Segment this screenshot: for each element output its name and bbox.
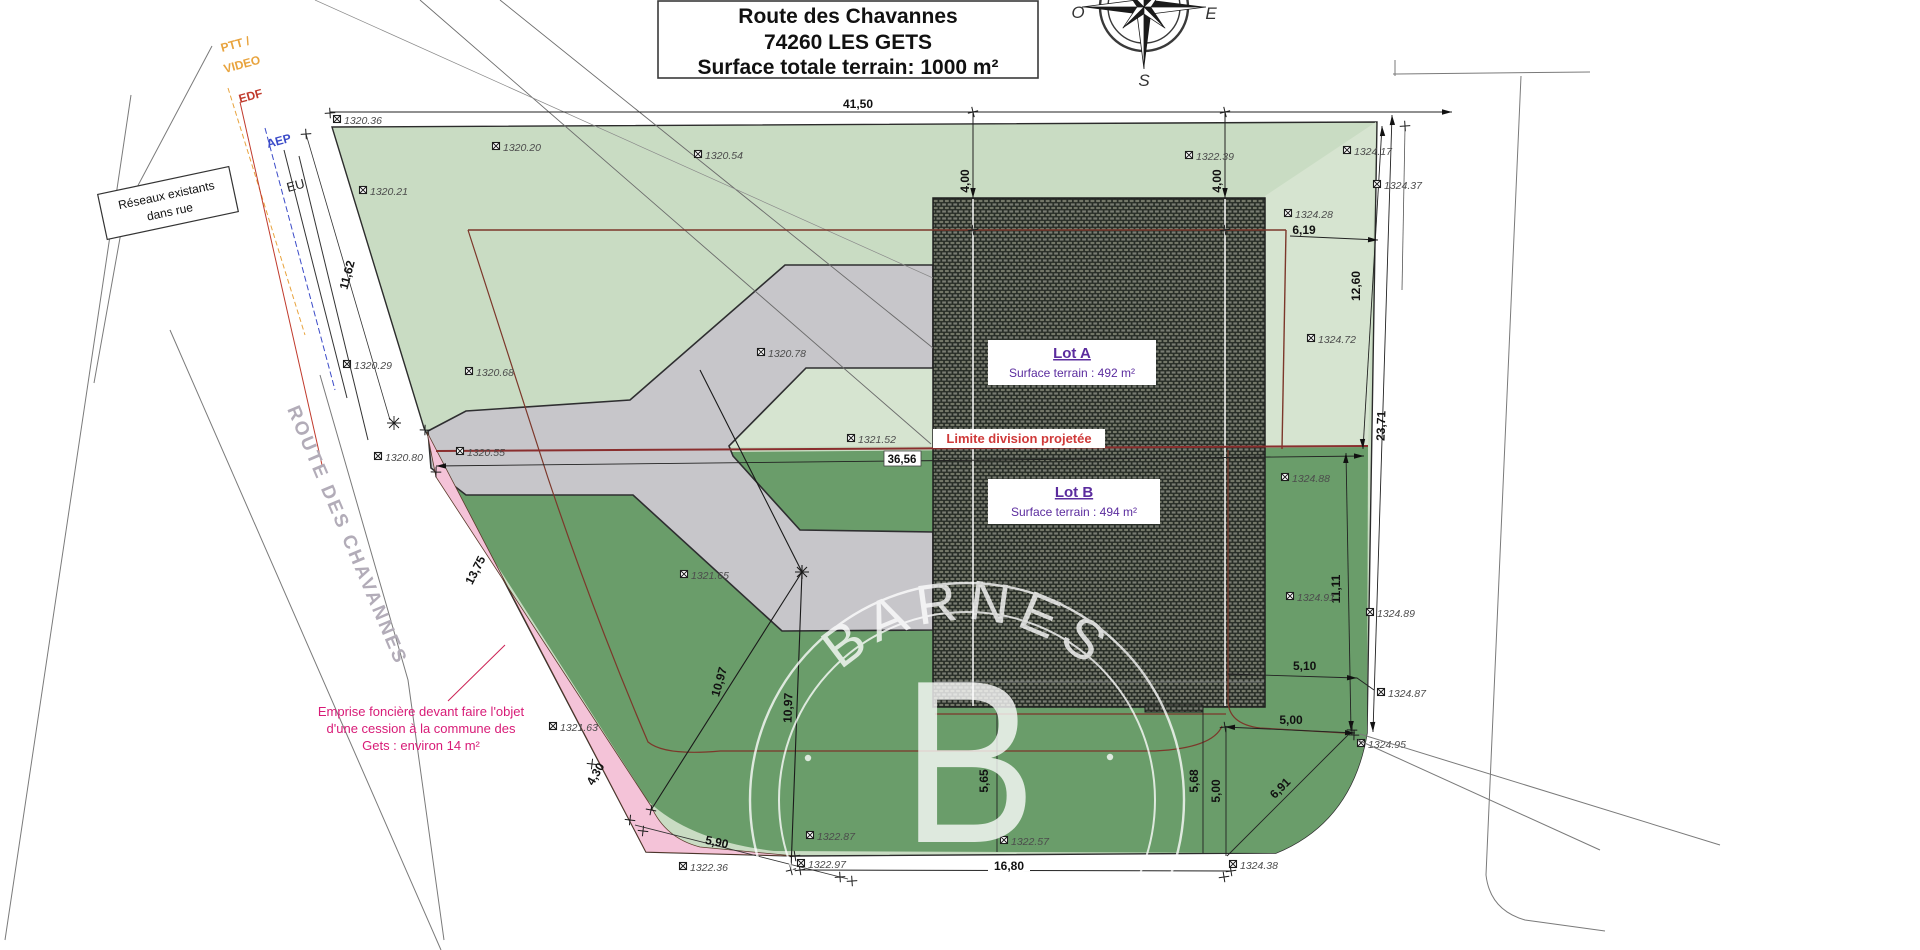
svg-text:1322.87: 1322.87 — [817, 831, 856, 843]
svg-text:23,71: 23,71 — [1373, 410, 1388, 441]
svg-text:Emprise foncière devant faire: Emprise foncière devant faire l'objet — [318, 704, 525, 719]
svg-text:1324.72: 1324.72 — [1318, 334, 1356, 346]
svg-text:1324.89: 1324.89 — [1377, 608, 1415, 620]
svg-text:1320.80: 1320.80 — [385, 452, 423, 464]
svg-text:1321.52: 1321.52 — [858, 434, 896, 446]
svg-text:4,00: 4,00 — [958, 169, 972, 193]
svg-text:1320.20: 1320.20 — [503, 142, 541, 154]
svg-text:5,68: 5,68 — [1187, 769, 1201, 793]
svg-text:5,00: 5,00 — [1279, 713, 1303, 727]
svg-text:Gets : environ 14 m²: Gets : environ 14 m² — [362, 738, 480, 753]
svg-text:5,10: 5,10 — [1293, 659, 1317, 673]
svg-text:1320.54: 1320.54 — [705, 150, 743, 162]
svg-text:1320.68: 1320.68 — [476, 367, 514, 379]
svg-text:1320.21: 1320.21 — [370, 186, 408, 198]
svg-text:B: B — [902, 633, 1037, 892]
svg-text:1321.63: 1321.63 — [560, 722, 598, 734]
svg-text:Surface terrain : 494 m²: Surface terrain : 494 m² — [1011, 505, 1137, 519]
svg-text:1324.38: 1324.38 — [1240, 860, 1278, 872]
svg-text:1322.39: 1322.39 — [1196, 151, 1234, 163]
svg-text:41,50: 41,50 — [843, 97, 873, 111]
svg-text:1322.36: 1322.36 — [690, 862, 728, 874]
svg-text:1320.78: 1320.78 — [768, 348, 806, 360]
svg-text:Surface terrain : 492 m²: Surface terrain : 492 m² — [1009, 366, 1135, 380]
svg-text:1324.88: 1324.88 — [1292, 473, 1330, 485]
svg-text:1321.65: 1321.65 — [691, 570, 729, 582]
svg-text:36,56: 36,56 — [888, 454, 917, 466]
svg-text:1322.97: 1322.97 — [808, 859, 847, 871]
svg-text:1324.87: 1324.87 — [1388, 688, 1427, 700]
svg-text:1324.91: 1324.91 — [1297, 592, 1335, 604]
svg-text:d'une cession à la commune des: d'une cession à la commune des — [327, 721, 516, 736]
svg-text:1320.29: 1320.29 — [354, 360, 392, 372]
svg-text:E: E — [1205, 4, 1217, 23]
svg-text:74260 LES GETS: 74260 LES GETS — [764, 31, 932, 54]
svg-text:1320.55: 1320.55 — [467, 447, 505, 459]
svg-text:Surface totale terrain: 1000 m: Surface totale terrain: 1000 m² — [697, 56, 998, 79]
svg-text:4,00: 4,00 — [1210, 169, 1224, 193]
svg-text:1324.95: 1324.95 — [1368, 739, 1406, 751]
svg-text:Limite division projetée: Limite division projetée — [946, 431, 1091, 446]
svg-text:5,00: 5,00 — [1209, 779, 1223, 803]
svg-text:1324.28: 1324.28 — [1295, 209, 1333, 221]
svg-text:1324.37: 1324.37 — [1384, 180, 1423, 192]
svg-text:10,97: 10,97 — [780, 692, 795, 723]
svg-text:1320.36: 1320.36 — [344, 115, 382, 127]
svg-text:Lot B: Lot B — [1055, 484, 1093, 501]
svg-text:6,19: 6,19 — [1292, 223, 1316, 237]
svg-text:O: O — [1071, 3, 1084, 22]
svg-text:S: S — [1138, 71, 1150, 90]
svg-text:Route des Chavannes: Route des Chavannes — [738, 5, 957, 28]
svg-text:1324.17: 1324.17 — [1354, 146, 1393, 158]
svg-text:12,60: 12,60 — [1349, 271, 1363, 301]
svg-text:Lot A: Lot A — [1053, 345, 1091, 362]
